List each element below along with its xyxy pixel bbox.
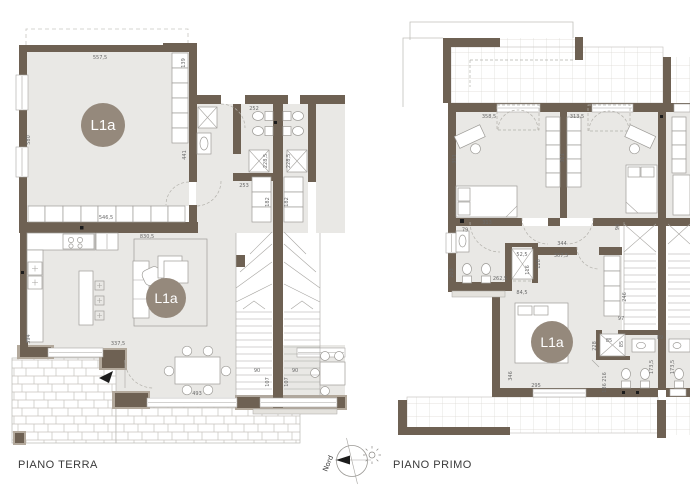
bed — [626, 165, 657, 213]
dim-label: 252 — [249, 106, 259, 112]
apartment-badges-primo: L1a — [531, 321, 573, 363]
dim-label: 344 — [557, 241, 567, 247]
dim-label: 182 — [265, 197, 271, 207]
dim-label: 307,5 — [554, 253, 568, 259]
dim-label: 313,5 — [570, 114, 584, 120]
floorplan-canvas: 557,5 139 580 441 546,5 830,5 252 228,5 … — [0, 0, 690, 500]
toilet — [622, 369, 631, 380]
plan-piano-terra: 557,5 139 580 441 546,5 830,5 252 228,5 … — [12, 29, 347, 445]
plan-title-primo: PIANO PRIMO — [393, 459, 472, 471]
apartment-badge-label: L1a — [540, 334, 564, 350]
dim-label: 346 — [508, 371, 514, 381]
compass-north-label: Nord — [321, 454, 335, 472]
wall-marker — [460, 219, 464, 223]
dim-label: 97 — [618, 316, 624, 322]
dim-label: 228,5 — [286, 154, 292, 168]
dim-label: 228,5 — [263, 154, 269, 168]
vanity — [632, 339, 655, 352]
dim-label: 107 — [284, 377, 290, 387]
dim-label: 493 — [192, 391, 202, 397]
kitchen-island — [79, 271, 93, 325]
plan-piano-primo: 358,5 351 313,5 361 313 79 203 262,5 52,… — [398, 22, 690, 438]
dim-label: 580 — [26, 135, 32, 145]
dim-label: 830,5 — [140, 234, 154, 240]
compass-rose: Nord — [321, 438, 381, 484]
dim-label: 52,5 — [516, 252, 527, 258]
dim-label: 557,5 — [93, 55, 107, 61]
dim-label: 116 — [525, 265, 531, 275]
dim-label: 313 — [482, 220, 492, 226]
dim-label: 361 — [560, 153, 566, 163]
dim-label: 203 — [449, 268, 455, 278]
dim-label: 228 — [592, 341, 598, 351]
dim-label: 96 — [615, 224, 621, 230]
dim-label: 173,5 — [649, 360, 655, 374]
dim-label: 337,5 — [111, 341, 125, 347]
floorplan-page: 557,5 139 580 441 546,5 830,5 252 228,5 … — [0, 0, 690, 500]
dim-label: 84,5 — [516, 290, 527, 296]
dim-label: 246 — [622, 292, 628, 302]
dim-label: 546,5 — [99, 215, 113, 221]
toilet — [463, 264, 472, 275]
wall-marker — [80, 226, 84, 230]
dim-label: 85 — [606, 338, 612, 344]
wall-marker — [274, 121, 277, 124]
wall-marker — [622, 391, 625, 394]
dim-label: 216 — [602, 372, 608, 382]
dim-label: 173,5 — [670, 360, 676, 374]
wall-marker — [660, 115, 663, 118]
dim-label: 441 — [182, 150, 188, 160]
bidet — [482, 264, 491, 275]
dim-label: 295 — [531, 383, 541, 389]
dim-label: 358,5 — [482, 114, 496, 120]
dim-label: 90 — [254, 368, 260, 374]
dim-label: 139 — [181, 58, 187, 68]
dim-label: 107 — [265, 377, 271, 387]
dim-label: 90 — [292, 368, 298, 374]
dim-label: 85 — [619, 341, 625, 347]
dim-label: 351 — [452, 154, 458, 164]
sun-icon — [369, 452, 375, 458]
apartment-badge-label: L1a — [154, 290, 178, 306]
dining-table — [175, 357, 220, 384]
apartment-badge-label: L1a — [90, 117, 116, 134]
plan-title-terra: PIANO TERRA — [18, 459, 98, 471]
dim-label: 253 — [239, 183, 249, 189]
wall-marker — [636, 391, 639, 394]
roof-overhang-outline — [26, 29, 188, 45]
dim-label: 186 — [602, 383, 608, 393]
dim-label: 182 — [284, 197, 290, 207]
dim-label: 262,5 — [493, 276, 507, 282]
north-arrow-icon — [336, 456, 350, 465]
dim-label: 79 — [462, 228, 468, 234]
staircase-primo — [624, 222, 690, 330]
dim-label: 128 — [536, 259, 542, 269]
wall-marker — [21, 271, 24, 274]
sink — [456, 231, 469, 252]
dim-label: 89 — [657, 335, 663, 341]
bed — [456, 186, 517, 217]
dim-label: 394 — [26, 334, 32, 344]
